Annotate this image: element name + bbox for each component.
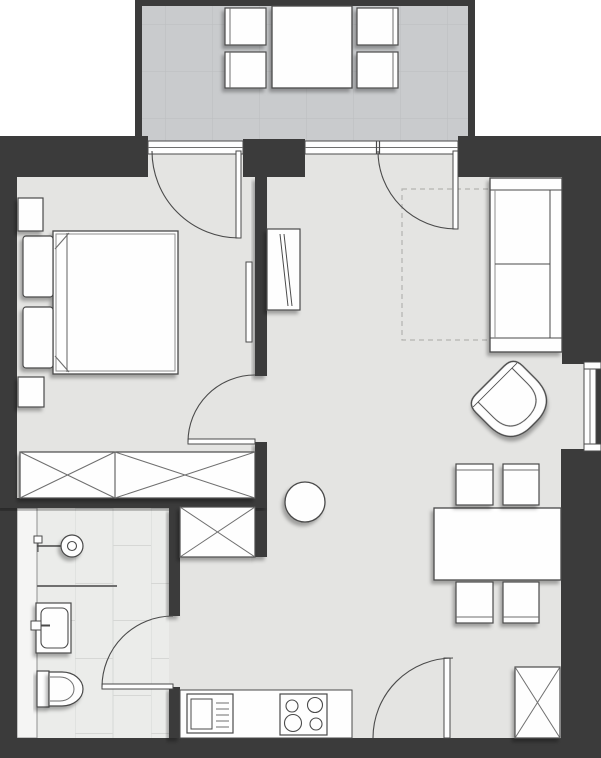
wall-window-outer bbox=[596, 364, 601, 449]
balcony-chair-bottom-right bbox=[357, 52, 398, 88]
entrance-door-leaf bbox=[444, 658, 450, 738]
balcony-chair-bottom-left bbox=[225, 52, 266, 88]
balcony-chair-top-left bbox=[225, 8, 266, 45]
balcony-wall-top bbox=[135, 0, 475, 6]
nightstand-top bbox=[18, 198, 43, 231]
bed-pillow-bottom bbox=[23, 307, 53, 368]
nightstand-bottom bbox=[18, 377, 44, 407]
wall-mirror bbox=[246, 262, 252, 342]
wall-right-upper bbox=[562, 136, 601, 364]
shower-valve bbox=[34, 536, 42, 543]
dining-table bbox=[434, 508, 561, 580]
wall-bathroom-upper bbox=[169, 508, 180, 616]
bedroom-balcony-door-leaf bbox=[236, 151, 241, 238]
wall-top-middle bbox=[243, 139, 305, 177]
bed-frame bbox=[53, 231, 178, 374]
balcony-table bbox=[272, 6, 352, 88]
balcony-wall-right bbox=[468, 0, 475, 140]
floor-plan-canvas bbox=[0, 0, 601, 758]
bathroom-door-leaf bbox=[102, 684, 173, 689]
window-cap-top bbox=[584, 362, 601, 369]
living-balcony-door-leaf bbox=[453, 151, 458, 229]
balcony-chair-top-right bbox=[357, 8, 398, 45]
wall-right-lower bbox=[561, 449, 601, 758]
wall-bathroom-lower bbox=[169, 687, 180, 738]
wall-left bbox=[0, 136, 17, 758]
floor-plan bbox=[0, 0, 601, 758]
wall-bottom bbox=[0, 738, 601, 758]
round-stool bbox=[285, 482, 325, 522]
toilet-tank bbox=[37, 671, 49, 707]
bath-faucet bbox=[31, 621, 41, 630]
bedroom-door-leaf bbox=[188, 439, 255, 444]
balcony-wall-left bbox=[135, 0, 142, 140]
window-cap-bottom bbox=[584, 444, 601, 451]
sofa-body bbox=[490, 178, 562, 352]
wall-bedroom-living-upper bbox=[255, 177, 267, 376]
wall-top-left bbox=[0, 136, 148, 177]
plan-root bbox=[0, 0, 601, 758]
shower-head bbox=[61, 535, 83, 557]
window-niche-floor bbox=[562, 364, 584, 449]
bed-pillow-top bbox=[23, 236, 53, 297]
